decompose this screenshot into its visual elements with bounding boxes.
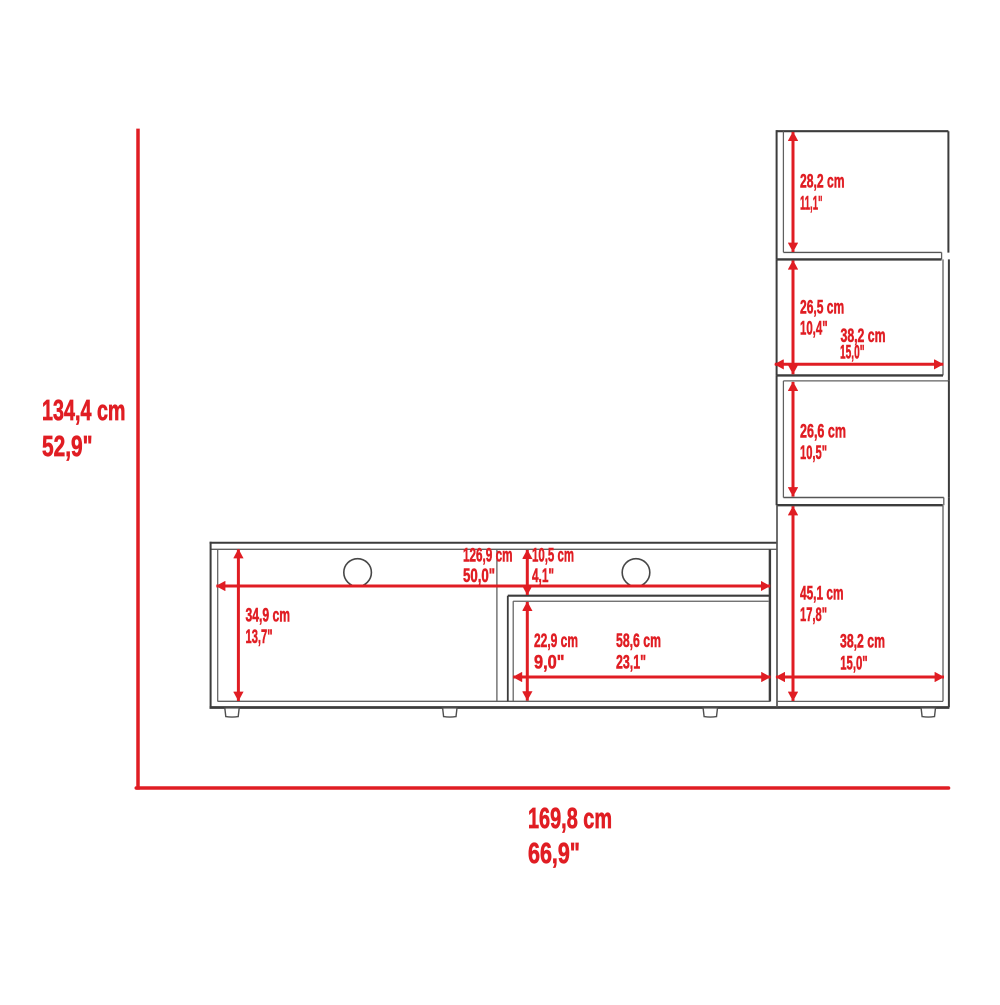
svg-text:10,5": 10,5" bbox=[800, 442, 827, 464]
svg-text:126,9 cm: 126,9 cm bbox=[463, 545, 513, 567]
svg-text:22,9 cm: 22,9 cm bbox=[534, 630, 578, 652]
svg-text:28,2 cm: 28,2 cm bbox=[800, 171, 845, 193]
svg-text:23,1": 23,1" bbox=[616, 652, 646, 674]
svg-text:10,5 cm: 10,5 cm bbox=[532, 545, 574, 567]
svg-text:13,7": 13,7" bbox=[246, 626, 273, 648]
svg-text:58,6 cm: 58,6 cm bbox=[616, 630, 661, 652]
svg-text:26,5 cm: 26,5 cm bbox=[800, 297, 844, 319]
svg-text:38,2 cm: 38,2 cm bbox=[840, 631, 885, 653]
svg-text:52,9": 52,9" bbox=[42, 431, 93, 463]
svg-text:26,6 cm: 26,6 cm bbox=[800, 421, 846, 443]
svg-text:15,0": 15,0" bbox=[840, 653, 868, 675]
svg-text:134,4 cm: 134,4 cm bbox=[42, 395, 126, 427]
svg-text:10,4": 10,4" bbox=[800, 318, 828, 340]
svg-text:9,0": 9,0" bbox=[534, 652, 565, 674]
svg-text:50,0": 50,0" bbox=[463, 565, 495, 587]
svg-text:17,8": 17,8" bbox=[800, 604, 827, 626]
svg-text:66,9": 66,9" bbox=[528, 838, 580, 870]
svg-text:15,0": 15,0" bbox=[840, 341, 865, 363]
svg-text:4,1": 4,1" bbox=[532, 565, 554, 587]
svg-text:11,1": 11,1" bbox=[800, 193, 823, 215]
svg-text:45,1 cm: 45,1 cm bbox=[800, 583, 844, 605]
svg-text:169,8 cm: 169,8 cm bbox=[528, 803, 612, 835]
svg-text:34,9 cm: 34,9 cm bbox=[246, 605, 291, 627]
